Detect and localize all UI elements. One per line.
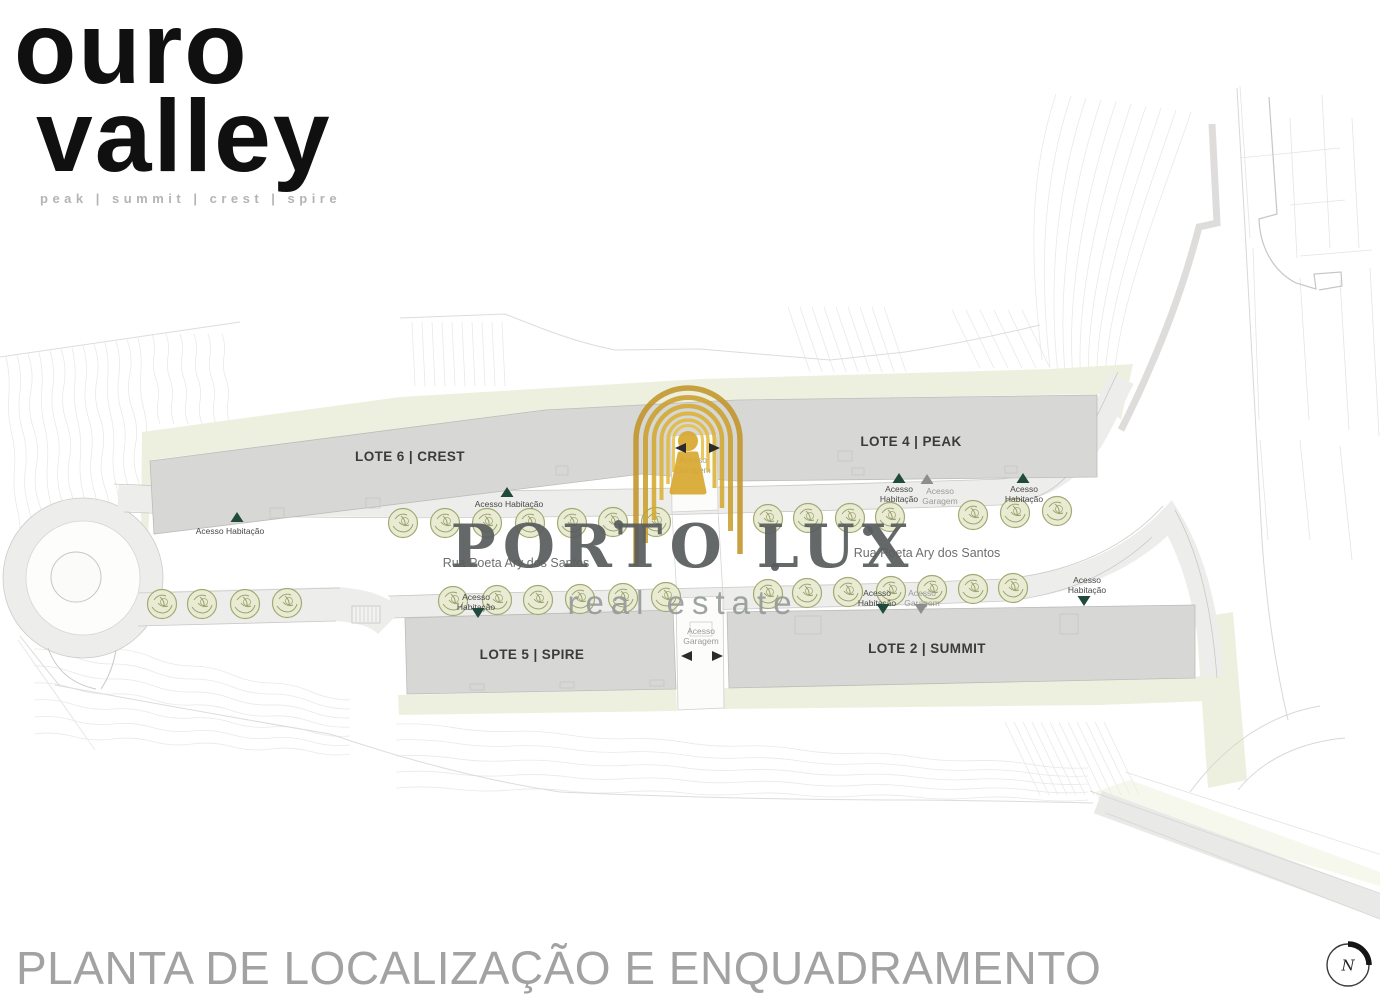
contour-line [452, 322, 455, 386]
contour-line [872, 307, 894, 372]
tree-icon [148, 590, 177, 619]
contour-line [1088, 106, 1146, 402]
tree-icon [231, 590, 260, 619]
site-plan-page: PORTO LUX real estate LOTE 6 | CRESTLOTE… [0, 0, 1380, 1000]
contour-line [53, 690, 95, 750]
contour-line [824, 307, 846, 372]
contour-line [994, 310, 1022, 368]
contour-line [812, 307, 834, 372]
contour-line [1034, 94, 1056, 360]
parcel-outline [1259, 97, 1342, 290]
contour-line [836, 307, 858, 372]
contour-line [1072, 102, 1116, 388]
contour-line [396, 787, 1088, 801]
contour-line [800, 307, 822, 372]
contour-line [966, 310, 994, 368]
north-compass-icon: N [1322, 939, 1374, 991]
contour-line [1059, 722, 1094, 795]
contour-line [208, 334, 216, 424]
contour-line [1023, 722, 1058, 795]
contour-line [860, 307, 882, 372]
contour-line [502, 322, 505, 386]
tree-icon [389, 509, 418, 538]
page-title: PLANTA DE LOCALIZAÇÃO E ENQUADRAMENTO [16, 941, 1101, 995]
wordmark-dot [614, 520, 623, 529]
contour-line [1005, 722, 1040, 795]
contour-line [1063, 100, 1101, 381]
contour-line [412, 322, 415, 386]
contour-line [442, 322, 445, 386]
contour-line [884, 307, 906, 372]
tree-icon [273, 589, 302, 618]
compass-north-letter: N [1340, 957, 1355, 975]
contour-line [1080, 104, 1131, 395]
contour-line [422, 322, 425, 386]
contour-line [396, 771, 1088, 793]
watermark-subtitle: real estate [567, 584, 798, 622]
tree-icon [959, 575, 988, 604]
contour-line [472, 322, 475, 386]
contour-line [152, 334, 160, 424]
brand-name-line2: valley [36, 96, 341, 178]
contour-line [432, 322, 435, 386]
stairs-strip [352, 606, 380, 623]
tree-icon [959, 501, 988, 530]
brand-tagline: peak | summit | crest | spire [40, 191, 341, 206]
brand-logo: ouro valley peak | summit | crest | spir… [14, 2, 341, 206]
tree-icon [439, 587, 468, 616]
wordmark-dot [771, 563, 779, 571]
contour-line [482, 322, 485, 386]
contour-line [396, 740, 1088, 777]
contour-line [34, 733, 350, 755]
tree-icon [999, 574, 1028, 603]
contour-line [180, 334, 188, 424]
tree-icon [1043, 497, 1072, 526]
contour-line [848, 307, 870, 372]
contour-line [462, 322, 465, 386]
tree-icon [524, 586, 553, 615]
contour-line [194, 334, 202, 424]
contour-line [980, 310, 1008, 368]
contour-line [1014, 722, 1049, 795]
wordmark-dot [863, 526, 873, 536]
contour-line [17, 356, 32, 544]
contour-line [1086, 722, 1121, 795]
contour-line [222, 334, 230, 424]
contour-line [6, 357, 20, 546]
contour-line [166, 334, 174, 424]
building-lote5 [405, 610, 676, 694]
tree-icon [918, 576, 947, 605]
contour-line [492, 322, 495, 386]
tree-icon [1001, 499, 1030, 528]
watermark-wordmark: PORTO LUX [451, 512, 916, 582]
tree-icon [483, 586, 512, 615]
contour-line [788, 307, 810, 372]
contour-line [1008, 310, 1036, 368]
cadastral-lines [1240, 86, 1379, 560]
tree-icon [188, 590, 217, 619]
